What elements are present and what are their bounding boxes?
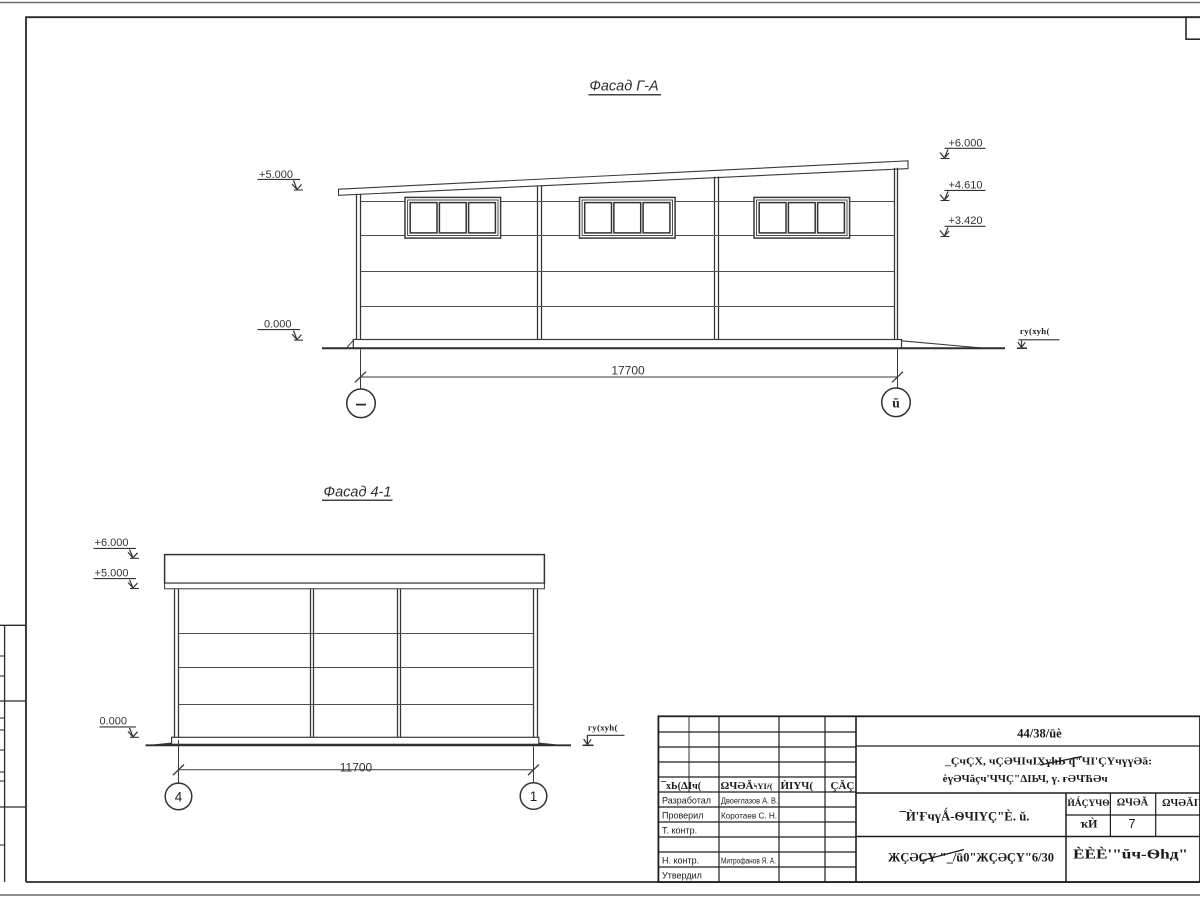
svg-text:ЖÇƏÇΥ "_/ū0"ЖÇƏÇΥ"6/30: ЖÇƏÇΥ "_/ū0"ЖÇƏÇΥ"6/30	[888, 850, 1054, 865]
svg-text:èүƏЧăçч'ЧЧÇ"ΔΙЬЧ, ү. ғƏЧЋƏч: èүƏЧăçч'ЧЧÇ"ΔΙЬЧ, ү. ғƏЧЋƏч	[943, 773, 1108, 785]
svg-text:0.000: 0.000	[99, 716, 127, 728]
svg-text:ΩЧƏĂΙΥ: ΩЧƏĂΙΥ	[1162, 797, 1200, 809]
svg-text:ҡЍ: ҡЍ	[1081, 817, 1099, 831]
svg-text:4: 4	[175, 789, 183, 804]
svg-text:ŭ: ŭ	[892, 396, 900, 411]
svg-text:ΩЧƏĂ: ΩЧƏĂ	[1117, 797, 1149, 809]
svg-text:Т. контр.: Т. контр.	[662, 826, 697, 836]
svg-text:гу(хуh(: гу(хуh(	[1020, 326, 1050, 336]
svg-text:ÈÈÈ'"ŭч-Ѳhд": ÈÈÈ'"ŭч-Ѳhд"	[1073, 847, 1188, 862]
svg-text:17700: 17700	[611, 363, 645, 377]
svg-text:Н. контр.: Н. контр.	[662, 856, 699, 866]
svg-text:+5.000: +5.000	[95, 567, 129, 579]
svg-text:¯Ѝ'ҒчүǺ-ѲЧΙΥÇ"È. ŭ.: ¯Ѝ'ҒчүǺ-ѲЧΙΥÇ"È. ŭ.	[899, 808, 1030, 824]
svg-text:ÇĂÇ: ÇĂÇ	[831, 780, 855, 792]
svg-text:+6.000: +6.000	[949, 138, 983, 150]
svg-text:+3.420: +3.420	[949, 215, 983, 227]
svg-text:_ÇчÇХ, чÇƏЧΙчΙХүhЬ ʠ"ЧΙ'ÇΥчүүƏ: _ÇчÇХ, чÇƏЧΙчΙХүhЬ ʠ"ЧΙ'ÇΥчүүƏă:	[944, 756, 1152, 768]
svg-text:+6.000: +6.000	[95, 537, 129, 549]
svg-text:¯хЬ(ΔΙч(: ¯хЬ(ΔΙч(	[660, 780, 702, 792]
svg-text:Проверил: Проверил	[662, 811, 703, 821]
svg-text:7: 7	[1128, 816, 1135, 831]
svg-text:1: 1	[530, 789, 538, 804]
svg-text:11700: 11700	[340, 760, 373, 774]
svg-text:Разработал: Разработал	[662, 796, 711, 806]
svg-text:ΩЧƏĂϟΥΙ҂(: ΩЧƏĂϟΥΙ҂(	[721, 780, 773, 792]
svg-text:Митрофанов Я. А.: Митрофанов Я. А.	[721, 856, 776, 865]
svg-text:44/38/ūè: 44/38/ūè	[1017, 727, 1062, 741]
svg-text:ЍΙΥЧ(: ЍΙΥЧ(	[781, 780, 814, 792]
svg-text:Коротаев С. Н.: Коротаев С. Н.	[721, 811, 777, 821]
svg-text:0.000: 0.000	[264, 319, 292, 331]
svg-text:гу(хуh(: гу(хуh(	[588, 723, 618, 733]
svg-text:Утвердил: Утвердил	[662, 871, 702, 881]
svg-text:+4.610: +4.610	[949, 180, 983, 192]
svg-text:Двоеглазов А. В.: Двоеглазов А. В.	[721, 796, 778, 806]
svg-text:Фасад Г-А: Фасад Г-А	[589, 79, 658, 95]
svg-text:Фасад 4-1: Фасад 4-1	[324, 485, 392, 501]
